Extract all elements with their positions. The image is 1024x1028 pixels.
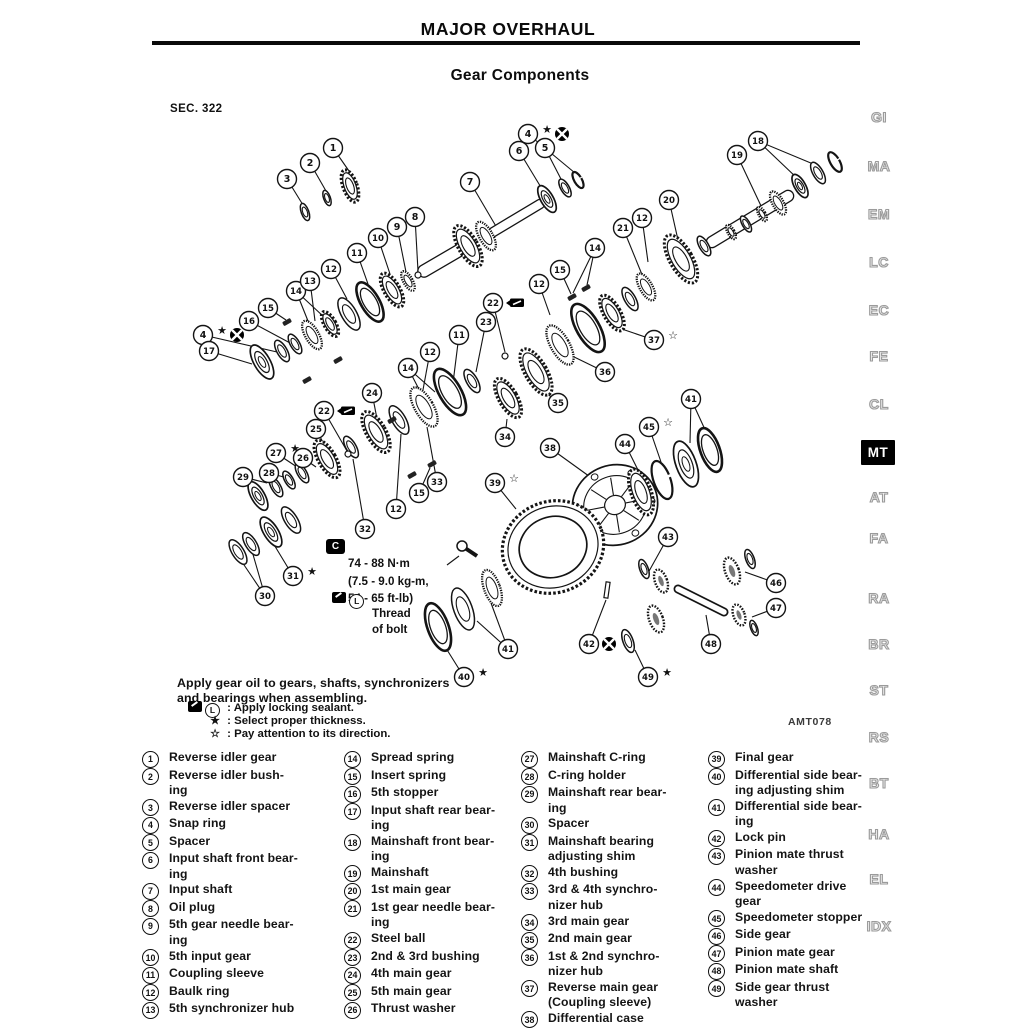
svg-text:40: 40 bbox=[458, 673, 470, 683]
part-name: 4th main gear bbox=[371, 966, 452, 982]
part-name: Snap ring bbox=[169, 816, 226, 832]
part-item-17: 17Input shaft rear bear- ing bbox=[344, 803, 516, 834]
svg-text:12: 12 bbox=[424, 348, 436, 358]
part-number-badge: 36 bbox=[521, 949, 538, 966]
svg-text:2: 2 bbox=[307, 158, 314, 169]
part-number-badge: 40 bbox=[708, 768, 725, 785]
part-name: Side gear thrust washer bbox=[735, 980, 829, 1011]
parts-list-column-4: 39Final gear40Differential side bear- in… bbox=[708, 750, 873, 1011]
part-number-badge: 39 bbox=[708, 751, 725, 768]
part-number-badge: 47 bbox=[708, 945, 725, 962]
callout-12: 12 bbox=[322, 260, 341, 279]
legend-row: L : Apply locking sealant. bbox=[184, 701, 390, 715]
part-number-badge: 32 bbox=[521, 865, 538, 882]
callout-48: 48 bbox=[702, 635, 721, 654]
part-number-badge: 6 bbox=[142, 852, 159, 869]
part-item-36: 361st & 2nd synchro- nizer hub bbox=[521, 949, 699, 980]
svg-text:25: 25 bbox=[310, 425, 322, 435]
callout-31: 31★ bbox=[284, 566, 318, 586]
part-number-badge: 42 bbox=[708, 830, 725, 847]
svg-text:23: 23 bbox=[480, 318, 492, 328]
callout-21: 21 bbox=[614, 219, 633, 238]
part-number-badge: 34 bbox=[521, 914, 538, 931]
svg-text:12: 12 bbox=[390, 505, 402, 515]
part-number-badge: 22 bbox=[344, 932, 361, 949]
part-item-30: 30Spacer bbox=[521, 816, 699, 834]
part-name: 5th input gear bbox=[169, 949, 251, 965]
svg-text:3: 3 bbox=[284, 174, 291, 185]
svg-text:4: 4 bbox=[525, 129, 532, 140]
part-name: Lock pin bbox=[735, 830, 786, 846]
part-number-badge: 13 bbox=[142, 1002, 159, 1019]
part-item-18: 18Mainshaft front bear- ing bbox=[344, 834, 516, 865]
part-number-badge: 7 bbox=[142, 883, 159, 900]
svg-text:6: 6 bbox=[516, 146, 523, 157]
part-name: Speedometer drive gear bbox=[735, 879, 846, 910]
select-thickness-star-icon: ★ bbox=[478, 667, 488, 679]
part-name: 1st gear needle bear- ing bbox=[371, 900, 495, 931]
part-item-16: 165th stopper bbox=[344, 785, 516, 803]
svg-text:39: 39 bbox=[489, 479, 501, 489]
callout-5: 5 bbox=[536, 139, 555, 158]
legend-row: ★ : Select proper thickness. bbox=[184, 715, 390, 729]
callout-45: 45☆ bbox=[640, 417, 674, 437]
part-item-26: 26Thrust washer bbox=[344, 1001, 516, 1019]
callout-29: 29 bbox=[234, 468, 253, 487]
part-item-40: 40Differential side bear- ing adjusting … bbox=[708, 768, 873, 799]
callout-9: 9 bbox=[388, 218, 407, 237]
part-number-badge: 44 bbox=[708, 879, 725, 896]
callout-6: 6 bbox=[510, 142, 529, 161]
svg-text:26: 26 bbox=[297, 454, 309, 464]
callout-2: 2 bbox=[301, 154, 320, 173]
part-number-badge: 2 bbox=[142, 768, 159, 785]
part-number-badge: 24 bbox=[344, 967, 361, 984]
part-item-28: 28C-ring holder bbox=[521, 768, 699, 786]
part-name: 1st main gear bbox=[371, 882, 451, 898]
callout-41: 41 bbox=[682, 390, 701, 409]
part-number-badge: 9 bbox=[142, 918, 159, 935]
part-number-badge: 16 bbox=[344, 786, 361, 803]
part-number-badge: 37 bbox=[521, 980, 538, 997]
part-item-44: 44Speedometer drive gear bbox=[708, 879, 873, 910]
svg-text:47: 47 bbox=[770, 604, 782, 614]
gear-oil-icon bbox=[555, 127, 569, 141]
part-name: Input shaft bbox=[169, 882, 232, 898]
callout-26: 26 bbox=[294, 449, 313, 468]
exploded-gear-diagram: 12374★6518192012211415122223111214242225… bbox=[0, 0, 1024, 760]
part-item-29: 29Mainshaft rear bear- ing bbox=[521, 785, 699, 816]
callout-42: 42 bbox=[580, 635, 617, 654]
part-item-12: 12Baulk ring bbox=[142, 984, 337, 1002]
part-item-32: 324th bushing bbox=[521, 865, 699, 883]
callout-28: 28 bbox=[260, 464, 279, 483]
callout-7: 7 bbox=[461, 173, 480, 192]
svg-text:34: 34 bbox=[499, 433, 511, 443]
part-name: Input shaft front bear- ing bbox=[169, 851, 298, 882]
locking-sealant-L-icon: L bbox=[349, 594, 364, 609]
part-name: 3rd main gear bbox=[548, 914, 629, 930]
part-name: Reverse idler bush- ing bbox=[169, 768, 284, 799]
part-item-19: 19Mainshaft bbox=[344, 865, 516, 883]
callout-23: 23 bbox=[477, 313, 496, 332]
manual-page: MAJOR OVERHAUL Gear Components SEC. 322 … bbox=[0, 0, 1024, 1024]
part-item-10: 105th input gear bbox=[142, 949, 337, 967]
part-item-27: 27Mainshaft C-ring bbox=[521, 750, 699, 768]
part-name: Speedometer stopper bbox=[735, 910, 862, 926]
part-item-4: 4Snap ring bbox=[142, 816, 337, 834]
callout-16: 16 bbox=[240, 312, 259, 331]
part-name: C-ring holder bbox=[548, 768, 626, 784]
callout-41: 41 bbox=[499, 640, 518, 659]
direction-star-icon: ☆ bbox=[663, 417, 673, 429]
svg-text:5: 5 bbox=[542, 143, 549, 154]
part-item-14: 14Spread spring bbox=[344, 750, 516, 768]
svg-text:24: 24 bbox=[366, 389, 378, 399]
callout-15: 15 bbox=[551, 261, 570, 280]
part-item-39: 39Final gear bbox=[708, 750, 873, 768]
part-number-badge: 8 bbox=[142, 900, 159, 917]
svg-text:14: 14 bbox=[402, 364, 414, 374]
svg-text:45: 45 bbox=[643, 423, 655, 433]
svg-text:7: 7 bbox=[467, 177, 474, 188]
part-item-34: 343rd main gear bbox=[521, 914, 699, 932]
callout-12: 12 bbox=[530, 275, 549, 294]
part-number-badge: 3 bbox=[142, 799, 159, 816]
part-name: Mainshaft C-ring bbox=[548, 750, 646, 766]
direction-star-icon: ☆ bbox=[668, 330, 678, 342]
part-name: 5th synchronizer hub bbox=[169, 1001, 294, 1017]
svg-text:15: 15 bbox=[554, 266, 566, 276]
part-name: Spacer bbox=[548, 816, 589, 832]
part-number-badge: 14 bbox=[344, 751, 361, 768]
svg-text:22: 22 bbox=[487, 299, 499, 309]
part-number-badge: 38 bbox=[521, 1011, 538, 1028]
callout-38: 38 bbox=[541, 439, 560, 458]
part-name: Oil plug bbox=[169, 900, 215, 916]
callout-14: 14 bbox=[586, 239, 605, 258]
part-name: Mainshaft rear bear- ing bbox=[548, 785, 667, 816]
part-number-badge: 46 bbox=[708, 928, 725, 945]
callout-35: 35 bbox=[549, 394, 568, 413]
part-number-badge: 33 bbox=[521, 883, 538, 900]
part-number-badge: 12 bbox=[142, 984, 159, 1001]
part-number-badge: 21 bbox=[344, 900, 361, 917]
part-number-badge: 25 bbox=[344, 984, 361, 1001]
callout-20: 20 bbox=[660, 191, 679, 210]
callout-49: 49★ bbox=[639, 667, 673, 687]
thread-note-text: Thread of bolt bbox=[372, 607, 411, 636]
svg-text:13: 13 bbox=[304, 277, 316, 287]
callout-32: 32 bbox=[356, 520, 375, 539]
svg-text:19: 19 bbox=[731, 151, 743, 161]
part-number-badge: 20 bbox=[344, 883, 361, 900]
svg-text:11: 11 bbox=[351, 249, 363, 259]
svg-text:18: 18 bbox=[752, 137, 764, 147]
parts-list-column-1: 1Reverse idler gear2Reverse idler bush- … bbox=[142, 750, 337, 1019]
part-name: 4th bushing bbox=[548, 865, 618, 881]
part-name: Mainshaft bearing adjusting shim bbox=[548, 834, 654, 865]
callout-12: 12 bbox=[387, 500, 406, 519]
callout-46: 46 bbox=[767, 574, 786, 593]
svg-text:29: 29 bbox=[237, 473, 249, 483]
svg-text:43: 43 bbox=[662, 533, 674, 543]
callout-18: 18 bbox=[749, 132, 768, 151]
svg-text:12: 12 bbox=[533, 280, 545, 290]
part-number-badge: 41 bbox=[708, 799, 725, 816]
part-number-badge: 30 bbox=[521, 817, 538, 834]
select-thickness-star-icon: ★ bbox=[217, 325, 227, 337]
part-item-38: 38Differential case bbox=[521, 1011, 699, 1028]
part-item-23: 232nd & 3rd bushing bbox=[344, 949, 516, 967]
select-thickness-star-icon: ★ bbox=[542, 124, 552, 136]
part-name: Baulk ring bbox=[169, 984, 230, 1000]
svg-text:16: 16 bbox=[243, 317, 255, 327]
part-name: Differential side bear- ing bbox=[735, 799, 862, 830]
part-name: Spread spring bbox=[371, 750, 454, 766]
part-name: 2nd main gear bbox=[548, 931, 632, 947]
part-item-5: 5Spacer bbox=[142, 834, 337, 852]
part-name: 5th main gear bbox=[371, 984, 452, 1000]
part-name: Thrust washer bbox=[371, 1001, 456, 1017]
svg-text:27: 27 bbox=[270, 449, 282, 459]
svg-text:36: 36 bbox=[599, 368, 611, 378]
figure-code: AMT078 bbox=[788, 716, 832, 728]
callout-11: 11 bbox=[348, 244, 367, 263]
svg-text:11: 11 bbox=[453, 331, 465, 341]
callout-15: 15 bbox=[410, 484, 429, 503]
svg-text:28: 28 bbox=[263, 469, 275, 479]
callout-30: 30 bbox=[256, 587, 275, 606]
svg-text:15: 15 bbox=[262, 304, 274, 314]
part-number-badge: 31 bbox=[521, 834, 538, 851]
part-number-badge: 17 bbox=[344, 803, 361, 820]
part-name: Steel ball bbox=[371, 931, 426, 947]
outline-star-icon: ☆ bbox=[210, 728, 220, 740]
part-number-badge: 49 bbox=[708, 980, 725, 997]
part-item-8: 8Oil plug bbox=[142, 900, 337, 918]
part-name: Reverse idler spacer bbox=[169, 799, 290, 815]
callout-36: 36 bbox=[596, 363, 615, 382]
callout-43: 43 bbox=[659, 528, 678, 547]
svg-text:17: 17 bbox=[203, 347, 215, 357]
svg-text:32: 32 bbox=[359, 525, 371, 535]
part-number-badge: 27 bbox=[521, 751, 538, 768]
part-name: Reverse main gear (Coupling sleeve) bbox=[548, 980, 658, 1011]
callout-15: 15 bbox=[259, 299, 278, 318]
callout-10: 10 bbox=[369, 229, 388, 248]
part-item-49: 49Side gear thrust washer bbox=[708, 980, 873, 1011]
part-number-badge: 11 bbox=[142, 967, 159, 984]
part-number-badge: 23 bbox=[344, 949, 361, 966]
part-item-11: 11Coupling sleeve bbox=[142, 966, 337, 984]
callout-37: 37☆ bbox=[645, 330, 679, 350]
legend-row: ☆ : Pay attention to its direction. bbox=[184, 728, 390, 742]
svg-text:8: 8 bbox=[412, 212, 419, 223]
thread-sealant-note: LThread of bolt bbox=[372, 590, 411, 638]
callout-44: 44 bbox=[616, 435, 635, 454]
part-name: Differential case bbox=[548, 1011, 644, 1027]
sealant-icon bbox=[188, 701, 202, 712]
part-name: 5th gear needle bear- ing bbox=[169, 917, 294, 948]
part-item-33: 333rd & 4th synchro- nizer hub bbox=[521, 882, 699, 913]
svg-text:14: 14 bbox=[589, 244, 601, 254]
callout-1: 1 bbox=[324, 139, 343, 158]
part-item-35: 352nd main gear bbox=[521, 931, 699, 949]
parts-list-column-3: 27Mainshaft C-ring28C-ring holder29Mains… bbox=[521, 750, 699, 1028]
part-name: Mainshaft front bear- ing bbox=[371, 834, 494, 865]
part-item-48: 48Pinion mate shaft bbox=[708, 962, 873, 980]
part-number-badge: 29 bbox=[521, 786, 538, 803]
svg-text:44: 44 bbox=[619, 440, 631, 450]
part-number-badge: 5 bbox=[142, 834, 159, 851]
svg-text:42: 42 bbox=[583, 640, 595, 650]
svg-text:1: 1 bbox=[330, 143, 337, 154]
part-item-46: 46Side gear bbox=[708, 927, 873, 945]
part-number-badge: 48 bbox=[708, 963, 725, 980]
part-number-badge: 10 bbox=[142, 949, 159, 966]
callout-19: 19 bbox=[728, 146, 747, 165]
svg-text:37: 37 bbox=[648, 336, 660, 346]
callout-33: 33 bbox=[428, 473, 447, 492]
svg-text:12: 12 bbox=[636, 214, 648, 224]
svg-text:41: 41 bbox=[502, 645, 514, 655]
svg-text:9: 9 bbox=[394, 222, 401, 233]
sealant-tube-icon bbox=[337, 407, 355, 416]
part-name: Pinion mate gear bbox=[735, 945, 835, 961]
part-number-badge: 15 bbox=[344, 768, 361, 785]
part-name: Coupling sleeve bbox=[169, 966, 264, 982]
part-item-42: 42Lock pin bbox=[708, 830, 873, 848]
svg-text:12: 12 bbox=[325, 265, 337, 275]
svg-text:31: 31 bbox=[287, 572, 299, 582]
part-name: Mainshaft bbox=[371, 865, 429, 881]
part-name: Side gear bbox=[735, 927, 791, 943]
svg-text:21: 21 bbox=[617, 224, 629, 234]
legend-text: : Apply locking sealant. bbox=[224, 702, 354, 714]
part-number-badge: 19 bbox=[344, 865, 361, 882]
svg-text:10: 10 bbox=[372, 234, 384, 244]
callout-24: 24 bbox=[363, 384, 382, 403]
legend-text: : Select proper thickness. bbox=[224, 715, 366, 727]
sealant-tube-icon bbox=[506, 299, 524, 308]
part-name: Pinion mate shaft bbox=[735, 962, 838, 978]
svg-text:35: 35 bbox=[552, 399, 564, 409]
svg-text:33: 33 bbox=[431, 478, 443, 488]
svg-text:15: 15 bbox=[413, 489, 425, 499]
part-name: Spacer bbox=[169, 834, 210, 850]
part-item-31: 31Mainshaft bearing adjusting shim bbox=[521, 834, 699, 865]
torque-wrench-icon: C bbox=[326, 539, 345, 554]
part-name: 2nd & 3rd bushing bbox=[371, 949, 480, 965]
symbol-legend: L : Apply locking sealant.★ : Select pro… bbox=[184, 701, 390, 742]
svg-text:20: 20 bbox=[663, 196, 675, 206]
direction-star-icon: ☆ bbox=[509, 473, 519, 485]
callout-22: 22 bbox=[315, 402, 356, 421]
callout-25: 25 bbox=[307, 420, 326, 439]
part-item-15: 15Insert spring bbox=[344, 768, 516, 786]
filled-star-icon: ★ bbox=[210, 715, 220, 727]
select-thickness-star-icon: ★ bbox=[662, 667, 672, 679]
callout-34: 34 bbox=[496, 428, 515, 447]
gear-oil-icon bbox=[602, 637, 616, 651]
part-name: Reverse idler gear bbox=[169, 750, 277, 766]
part-item-37: 37Reverse main gear (Coupling sleeve) bbox=[521, 980, 699, 1011]
callout-12: 12 bbox=[421, 343, 440, 362]
svg-text:38: 38 bbox=[544, 444, 556, 454]
callout-3: 3 bbox=[278, 170, 297, 189]
legend-text: : Pay attention to its direction. bbox=[224, 728, 390, 740]
sealant-icon bbox=[332, 592, 346, 603]
part-item-25: 255th main gear bbox=[344, 984, 516, 1002]
part-number-badge: 4 bbox=[142, 817, 159, 834]
svg-text:22: 22 bbox=[318, 407, 330, 417]
callout-17: 17 bbox=[200, 342, 219, 361]
callout-40: 40★ bbox=[455, 667, 489, 687]
svg-text:41: 41 bbox=[685, 395, 697, 405]
callout-47: 47 bbox=[767, 599, 786, 618]
part-number-badge: 43 bbox=[708, 848, 725, 865]
svg-text:4: 4 bbox=[200, 330, 207, 341]
part-item-6: 6Input shaft front bear- ing bbox=[142, 851, 337, 882]
part-item-21: 211st gear needle bear- ing bbox=[344, 900, 516, 931]
svg-text:30: 30 bbox=[259, 592, 271, 602]
part-name: Input shaft rear bear- ing bbox=[371, 803, 495, 834]
part-number-badge: 26 bbox=[344, 1002, 361, 1019]
part-number-badge: 28 bbox=[521, 768, 538, 785]
part-item-7: 7Input shaft bbox=[142, 882, 337, 900]
part-number-badge: 1 bbox=[142, 751, 159, 768]
svg-text:48: 48 bbox=[705, 640, 717, 650]
callout-13: 13 bbox=[301, 272, 320, 291]
callout-8: 8 bbox=[406, 208, 425, 227]
parts-list-column-2: 14Spread spring15Insert spring165th stop… bbox=[344, 750, 516, 1019]
part-item-47: 47Pinion mate gear bbox=[708, 945, 873, 963]
part-number-badge: 18 bbox=[344, 834, 361, 851]
part-item-41: 41Differential side bear- ing bbox=[708, 799, 873, 830]
svg-text:49: 49 bbox=[642, 673, 654, 683]
part-name: 5th stopper bbox=[371, 785, 438, 801]
part-item-1: 1Reverse idler gear bbox=[142, 750, 337, 768]
part-name: 1st & 2nd synchro- nizer hub bbox=[548, 949, 660, 980]
part-name: Final gear bbox=[735, 750, 794, 766]
part-item-45: 45Speedometer stopper bbox=[708, 910, 873, 928]
callout-12: 12 bbox=[633, 209, 652, 228]
part-item-20: 201st main gear bbox=[344, 882, 516, 900]
part-name: Differential side bear- ing adjusting sh… bbox=[735, 768, 862, 799]
svg-text:14: 14 bbox=[290, 287, 302, 297]
callout-22: 22 bbox=[484, 294, 525, 313]
part-item-43: 43Pinion mate thrust washer bbox=[708, 847, 873, 878]
part-item-9: 95th gear needle bear- ing bbox=[142, 917, 337, 948]
part-name: Insert spring bbox=[371, 768, 446, 784]
part-number-badge: 45 bbox=[708, 910, 725, 927]
part-name: 3rd & 4th synchro- nizer hub bbox=[548, 882, 657, 913]
part-item-3: 3Reverse idler spacer bbox=[142, 799, 337, 817]
callout-14: 14 bbox=[399, 359, 418, 378]
callout-4: 4★ bbox=[194, 325, 245, 345]
part-item-22: 22Steel ball bbox=[344, 931, 516, 949]
part-item-24: 244th main gear bbox=[344, 966, 516, 984]
gear-oil-icon bbox=[230, 328, 244, 342]
part-item-2: 2Reverse idler bush- ing bbox=[142, 768, 337, 799]
svg-text:46: 46 bbox=[770, 579, 782, 589]
part-number-badge: 35 bbox=[521, 932, 538, 949]
callout-39: 39☆ bbox=[486, 473, 520, 493]
select-thickness-star-icon: ★ bbox=[307, 566, 317, 578]
part-item-13: 135th synchronizer hub bbox=[142, 1001, 337, 1019]
callout-11: 11 bbox=[450, 326, 469, 345]
